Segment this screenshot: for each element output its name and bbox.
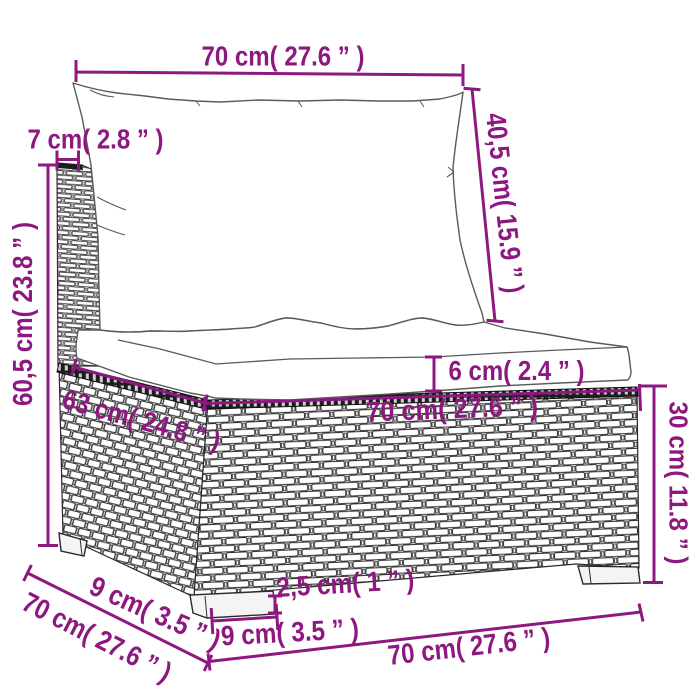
svg-text:7 cm( 2.8 ” ): 7 cm( 2.8 ” ) — [28, 124, 164, 155]
svg-text:70 cm( 27.6 ” ): 70 cm( 27.6 ” ) — [202, 41, 365, 72]
svg-text:30 cm( 11.8 ” ): 30 cm( 11.8 ” ) — [664, 402, 692, 565]
svg-text:6 cm( 2.4 ” ): 6 cm( 2.4 ” ) — [449, 355, 585, 386]
svg-text:60,5 cm( 23.8 ” ): 60,5 cm( 23.8 ” ) — [7, 222, 38, 406]
svg-text:70 cm( 27.6 ” ): 70 cm( 27.6 ” ) — [366, 390, 539, 428]
